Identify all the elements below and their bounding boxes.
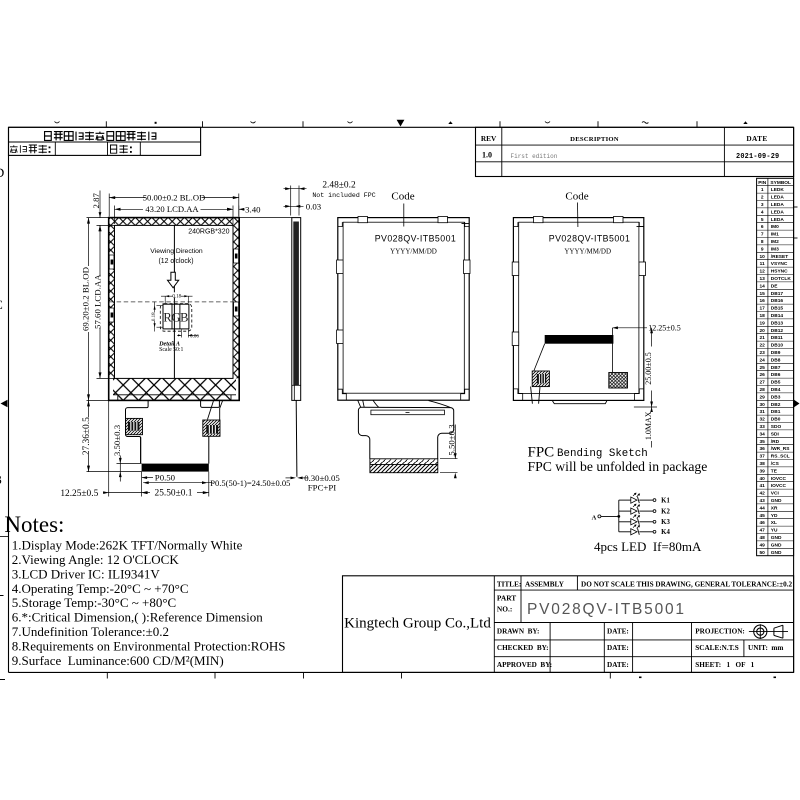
svg-text:ASSEMBLY: ASSEMBLY	[525, 580, 565, 588]
svg-text:30: 30	[760, 402, 766, 408]
svg-text:22: 22	[760, 343, 766, 349]
svg-text:DB3: DB3	[771, 394, 781, 400]
svg-text:2.Viewing Angle: 12 O'CLOCK: 2.Viewing Angle: 12 O'CLOCK	[12, 552, 180, 567]
svg-text:YYYY/MM/DD: YYYY/MM/DD	[564, 248, 611, 256]
svg-text:12.25±0.5: 12.25±0.5	[648, 324, 680, 333]
svg-text:GND: GND	[771, 550, 782, 556]
svg-text:YU: YU	[771, 528, 778, 534]
svg-text:DB8: DB8	[771, 357, 781, 363]
svg-text:DB6: DB6	[771, 372, 781, 378]
svg-text:UNIT: mm: UNIT: mm	[748, 644, 783, 652]
svg-text:Scale 50:1: Scale 50:1	[159, 347, 183, 353]
svg-text:14: 14	[760, 283, 766, 289]
svg-text:DB2: DB2	[771, 402, 781, 408]
svg-text:9: 9	[761, 246, 764, 252]
svg-text:LEDA: LEDA	[771, 195, 785, 201]
svg-text:DB17: DB17	[771, 291, 784, 297]
svg-text:0.03: 0.03	[306, 201, 322, 211]
svg-text:PV028QV-ITB5001: PV028QV-ITB5001	[375, 233, 457, 243]
svg-text:/RD: /RD	[771, 439, 780, 445]
svg-text:LEDA: LEDA	[771, 209, 785, 215]
svg-text:46: 46	[760, 520, 766, 526]
svg-text:35: 35	[760, 439, 766, 445]
svg-text:DATE:: DATE:	[607, 627, 629, 635]
svg-text:5: 5	[761, 217, 764, 223]
svg-text:SHEET: 1 OF 1: SHEET: 1 OF 1	[695, 661, 754, 669]
svg-text:/RESET: /RESET	[771, 254, 788, 260]
svg-text:DB7: DB7	[771, 365, 781, 371]
svg-text:P0.50: P0.50	[155, 473, 176, 483]
svg-text:240RGB*320: 240RGB*320	[188, 229, 229, 236]
svg-text:11: 11	[760, 261, 765, 267]
svg-text:K2: K2	[661, 508, 670, 515]
svg-text:DESCRIPTION: DESCRIPTION	[570, 136, 619, 143]
svg-text:REV: REV	[481, 134, 497, 143]
svg-text:33: 33	[760, 424, 766, 430]
svg-text:CHECKED BY:: CHECKED BY:	[497, 644, 549, 652]
svg-text:69.20±0.2 BL.OD: 69.20±0.2 BL.OD	[80, 267, 90, 331]
svg-text:DATE:: DATE:	[607, 644, 629, 652]
svg-text:D: D	[0, 165, 4, 180]
svg-text:APPROVED BY:: APPROVED BY:	[497, 661, 552, 669]
svg-text:7.Undefinition Tolerance:±0.2: 7.Undefinition Tolerance:±0.2	[12, 624, 169, 639]
svg-text:PART: PART	[497, 594, 516, 603]
svg-text:45: 45	[760, 513, 766, 519]
svg-text:IM2: IM2	[771, 239, 779, 245]
svg-text:PV028QV-ITB5001: PV028QV-ITB5001	[527, 601, 686, 618]
svg-text:K3: K3	[661, 519, 670, 526]
svg-text:16: 16	[760, 298, 766, 304]
svg-text:44: 44	[760, 505, 766, 511]
svg-text:5.50±0.3: 5.50±0.3	[447, 424, 457, 456]
svg-text:DO NOT SCALE THIS DRAWING, GEN: DO NOT SCALE THIS DRAWING, GENERAL TOLER…	[581, 580, 793, 588]
svg-text:IOVCC: IOVCC	[771, 476, 787, 482]
svg-text:8.Requirements on Environmenta: 8.Requirements on Environmental Protecti…	[12, 639, 286, 654]
svg-text:43: 43	[760, 498, 766, 504]
svg-text:6.*:Critical Dimension,( ):Ref: 6.*:Critical Dimension,( ):Reference Dim…	[12, 610, 263, 625]
svg-text:15: 15	[760, 291, 766, 297]
svg-text:DB16: DB16	[771, 298, 784, 304]
svg-text:3.LCD Driver IC: ILI9341V: 3.LCD Driver IC: ILI9341V	[12, 566, 161, 581]
svg-text:IOVCC: IOVCC	[771, 483, 787, 489]
svg-text:6: 6	[761, 224, 764, 230]
svg-text:3.50±0.3: 3.50±0.3	[112, 424, 122, 456]
svg-text:DB11: DB11	[771, 335, 783, 341]
svg-text:TITLE:: TITLE:	[497, 580, 521, 588]
svg-text:PROJECTION:: PROJECTION:	[695, 627, 745, 635]
svg-text:21: 21	[760, 335, 766, 341]
svg-text:2.48±0.2: 2.48±0.2	[322, 181, 356, 191]
svg-text:DE: DE	[771, 283, 778, 289]
svg-text:31: 31	[760, 409, 766, 415]
svg-text:19: 19	[760, 320, 766, 326]
svg-text:DATE:: DATE:	[607, 661, 629, 669]
svg-text:34: 34	[760, 431, 766, 437]
svg-text:4: 4	[761, 209, 764, 215]
svg-text:3: 3	[0, 472, 2, 487]
svg-text:29: 29	[760, 394, 766, 400]
svg-text:FPC will be unfolded in packag: FPC will be unfolded in package	[528, 459, 708, 474]
svg-text:P0.5(50-1)=24.50±0.05: P0.5(50-1)=24.50±0.05	[210, 478, 290, 488]
svg-text:23: 23	[760, 350, 766, 356]
svg-text:DB5: DB5	[771, 380, 781, 386]
svg-text:2: 2	[761, 195, 764, 201]
svg-text:C: C	[0, 297, 3, 312]
svg-text:A: A	[592, 514, 597, 521]
svg-text:0.18: 0.18	[152, 312, 157, 321]
svg-text:13: 13	[760, 276, 766, 282]
svg-text:24: 24	[760, 357, 766, 363]
svg-text:1.Display Mode:262K TFT/Normal: 1.Display Mode:262K TFT/Normally White	[12, 537, 243, 552]
svg-text:DB15: DB15	[771, 306, 784, 312]
svg-text:Notes:: Notes:	[4, 512, 64, 537]
svg-text:2.87: 2.87	[91, 193, 101, 209]
svg-text:27.36±0.5: 27.36±0.5	[82, 417, 92, 455]
svg-text:1.0: 1.0	[482, 151, 492, 160]
svg-text:28: 28	[760, 387, 766, 393]
svg-text:DB0: DB0	[771, 417, 781, 423]
svg-text:DB1: DB1	[771, 409, 781, 415]
svg-text:IM1: IM1	[771, 232, 779, 238]
svg-text:25.00±0.5: 25.00±0.5	[644, 352, 653, 384]
svg-text:43.20 LCD.AA: 43.20 LCD.AA	[145, 204, 199, 214]
svg-text:First edition: First edition	[511, 153, 558, 160]
svg-text:XL: XL	[771, 520, 777, 526]
svg-text:FPC+PI: FPC+PI	[308, 483, 337, 493]
svg-text:Not included FPC: Not included FPC	[312, 192, 375, 199]
svg-text:49: 49	[760, 542, 766, 548]
svg-text:DRAWN BY:: DRAWN BY:	[497, 627, 539, 635]
svg-text:LEDK: LEDK	[771, 187, 785, 193]
svg-text:GND: GND	[771, 535, 782, 541]
svg-text:DB4: DB4	[771, 387, 781, 393]
svg-text:5.Storage Temp:-30°C ~ +80°C: 5.Storage Temp:-30°C ~ +80°C	[12, 595, 176, 610]
svg-text:2021-09-29: 2021-09-29	[736, 153, 779, 161]
svg-text:40: 40	[760, 476, 766, 482]
svg-text:Code: Code	[565, 191, 588, 203]
svg-text:17: 17	[760, 306, 766, 312]
svg-text:TE: TE	[771, 468, 778, 474]
svg-text:9.Surface Luminance:600 CD/M²: 9.Surface Luminance:600 CD/M²(MIN)	[12, 653, 224, 668]
svg-text:SYMBOL: SYMBOL	[770, 180, 791, 186]
svg-text:K1: K1	[661, 497, 670, 504]
svg-text:DB10: DB10	[771, 343, 784, 349]
svg-text:41: 41	[760, 483, 766, 489]
svg-text:NO.:: NO.:	[497, 605, 512, 614]
svg-text:PIN: PIN	[758, 180, 767, 186]
svg-text:50: 50	[760, 550, 766, 556]
svg-text:18: 18	[760, 313, 766, 319]
svg-text:K4: K4	[661, 529, 670, 536]
svg-text:VSYNC: VSYNC	[771, 261, 788, 267]
svg-text:39: 39	[760, 468, 766, 474]
svg-text:4.Operating Temp:-20°C ~ +70°C: 4.Operating Temp:-20°C ~ +70°C	[12, 581, 189, 596]
svg-text:12.25±0.5: 12.25±0.5	[60, 489, 98, 499]
svg-text:DB13: DB13	[771, 320, 784, 326]
svg-text:YD: YD	[771, 513, 778, 519]
svg-text:XR: XR	[771, 505, 778, 511]
svg-text:IM0: IM0	[771, 224, 779, 230]
svg-text:DB14: DB14	[771, 313, 784, 319]
svg-text:32: 32	[760, 417, 766, 423]
svg-text:LEDA: LEDA	[771, 202, 785, 208]
svg-text:25.50±0.1: 25.50±0.1	[155, 489, 193, 499]
svg-text:HSYNC: HSYNC	[771, 269, 788, 275]
svg-text:7: 7	[761, 232, 764, 238]
svg-text:0.18: 0.18	[172, 294, 181, 299]
svg-text:DOTCLK: DOTCLK	[771, 276, 792, 282]
svg-text:0.06: 0.06	[190, 334, 199, 339]
svg-text:3: 3	[761, 202, 764, 208]
svg-text:(12 o'clock): (12 o'clock)	[158, 258, 193, 265]
svg-text:GND: GND	[771, 542, 782, 548]
svg-text:Code: Code	[391, 191, 414, 203]
svg-text:8: 8	[761, 239, 764, 245]
svg-text:1.0MAX: 1.0MAX	[644, 411, 653, 440]
svg-text:57.60 LCD.AA: 57.60 LCD.AA	[92, 274, 102, 329]
svg-text:IM3: IM3	[771, 246, 779, 252]
svg-text:3.40: 3.40	[245, 204, 261, 214]
svg-text:/WR_RS: /WR_RS	[771, 446, 790, 452]
svg-text:4pcs LED If=80mA: 4pcs LED If=80mA	[594, 539, 702, 554]
svg-text:20: 20	[760, 328, 766, 334]
svg-text:SDI: SDI	[771, 431, 780, 437]
svg-text:25: 25	[760, 365, 766, 371]
svg-text:LEDA: LEDA	[771, 217, 785, 223]
svg-text:47: 47	[760, 528, 766, 534]
svg-text:Kingtech Group Co.,Ltd: Kingtech Group Co.,Ltd	[344, 616, 491, 632]
svg-text:1: 1	[761, 187, 764, 193]
svg-text:GND: GND	[771, 498, 782, 504]
svg-text:DB12: DB12	[771, 328, 784, 334]
svg-text:42: 42	[760, 491, 766, 497]
svg-text:DATE: DATE	[746, 134, 767, 143]
svg-text:10: 10	[760, 254, 766, 260]
svg-text:38: 38	[760, 461, 766, 467]
svg-text:DB9: DB9	[771, 350, 781, 356]
svg-text:YYYY/MM/DD: YYYY/MM/DD	[390, 248, 437, 256]
svg-text:12: 12	[760, 269, 766, 275]
svg-text:PV028QV-ITB5001: PV028QV-ITB5001	[549, 233, 631, 243]
svg-text:RS_SCL: RS_SCL	[771, 454, 790, 460]
svg-text:36: 36	[760, 446, 766, 452]
svg-text:SDO: SDO	[771, 424, 782, 430]
svg-text:SCALE:N.T.S: SCALE:N.T.S	[695, 644, 738, 652]
svg-text:26: 26	[760, 372, 766, 378]
svg-text:/CS: /CS	[771, 461, 780, 467]
svg-text:VCI: VCI	[771, 491, 780, 497]
svg-text:B: B	[180, 311, 188, 325]
svg-text:37: 37	[760, 454, 766, 460]
svg-text:27: 27	[760, 380, 766, 386]
svg-text:48: 48	[760, 535, 766, 541]
svg-text:50.00±0.2 BL.OD: 50.00±0.2 BL.OD	[143, 193, 206, 203]
svg-text:Viewing Direction: Viewing Direction	[150, 248, 203, 255]
